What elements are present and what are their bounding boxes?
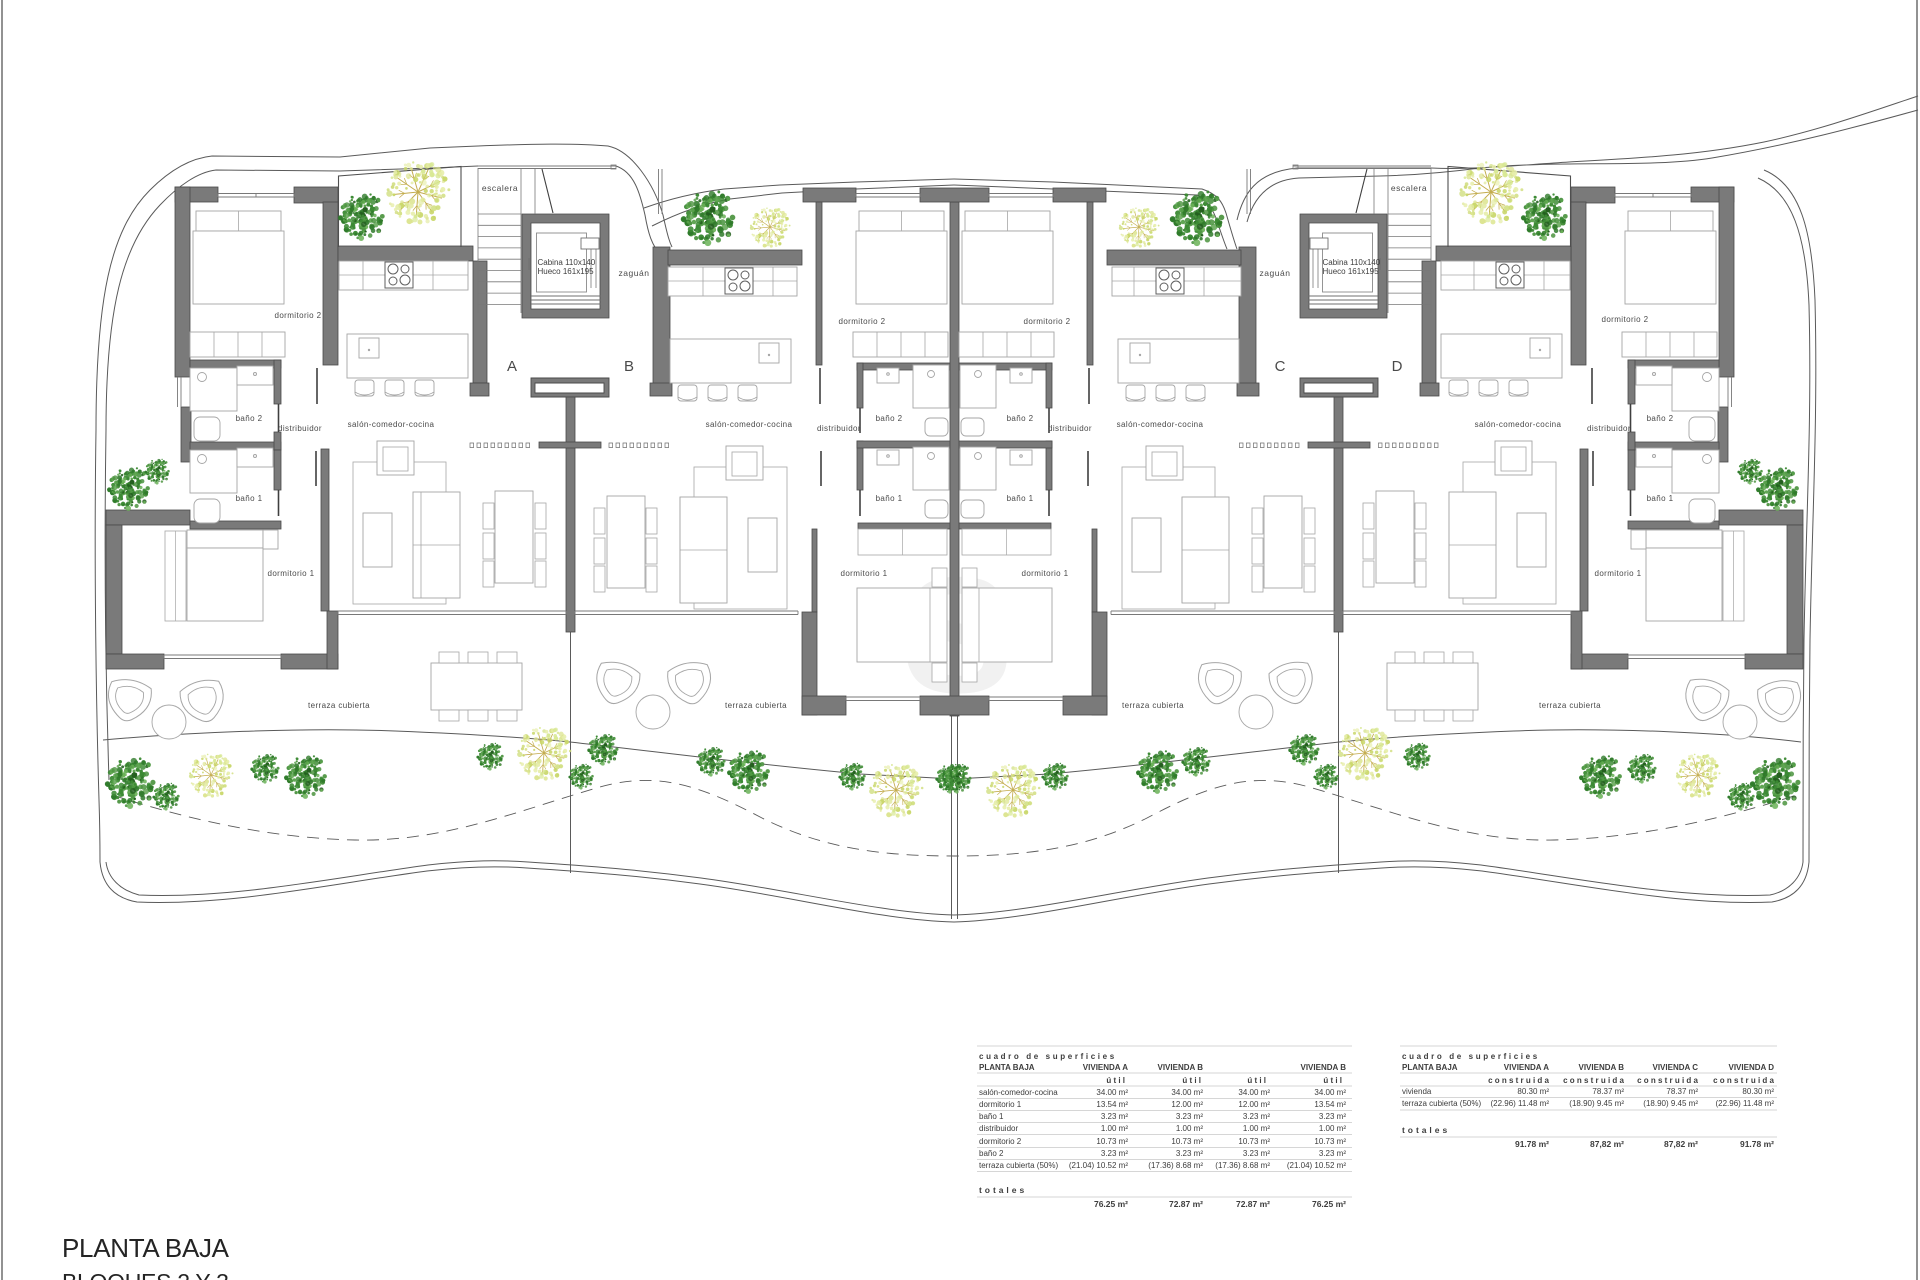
svg-text:baño 1: baño 1 bbox=[979, 1112, 1004, 1121]
svg-text:13.54 m²: 13.54 m² bbox=[1096, 1100, 1128, 1109]
svg-text:(18.90) 9.45 m²: (18.90) 9.45 m² bbox=[1569, 1099, 1624, 1108]
svg-text:10.73 m²: 10.73 m² bbox=[1238, 1137, 1270, 1146]
svg-text:distribuidor: distribuidor bbox=[1048, 424, 1092, 433]
svg-text:72.87 m²: 72.87 m² bbox=[1236, 1199, 1270, 1209]
svg-text:baño 1: baño 1 bbox=[876, 494, 903, 503]
svg-text:B: B bbox=[624, 358, 634, 375]
svg-text:78.37 m²: 78.37 m² bbox=[1592, 1087, 1624, 1096]
svg-text:c o n s t r u i d a: c o n s t r u i d a bbox=[1563, 1076, 1624, 1085]
svg-text:80.30 m²: 80.30 m² bbox=[1742, 1087, 1774, 1096]
svg-text:baño 2: baño 2 bbox=[236, 414, 263, 423]
svg-text:34.00 m²: 34.00 m² bbox=[1314, 1088, 1346, 1097]
svg-text:PLANTA BAJA: PLANTA BAJA bbox=[1402, 1063, 1458, 1072]
svg-text:13.54 m²: 13.54 m² bbox=[1314, 1100, 1346, 1109]
svg-text:(18.90) 9.45 m²: (18.90) 9.45 m² bbox=[1643, 1099, 1698, 1108]
svg-text:dormitorio 2: dormitorio 2 bbox=[274, 311, 321, 320]
svg-text:salón-comedor-cocina: salón-comedor-cocina bbox=[348, 420, 435, 429]
svg-text:80.30 m²: 80.30 m² bbox=[1517, 1087, 1549, 1096]
svg-text:distribuidor: distribuidor bbox=[1587, 424, 1631, 433]
svg-text:VIVIENDA D: VIVIENDA D bbox=[1729, 1063, 1775, 1072]
svg-text:C: C bbox=[1275, 358, 1286, 375]
svg-text:91.78 m²: 91.78 m² bbox=[1740, 1139, 1774, 1149]
svg-text:terraza cubierta (50%): terraza cubierta (50%) bbox=[979, 1161, 1058, 1170]
svg-text:Hueco 161x195: Hueco 161x195 bbox=[538, 267, 595, 276]
svg-text:terraza cubierta: terraza cubierta bbox=[725, 701, 787, 710]
svg-text:dormitorio 2: dormitorio 2 bbox=[1023, 317, 1070, 326]
svg-text:VIVIENDA B: VIVIENDA B bbox=[1158, 1063, 1204, 1072]
svg-text:terraza cubierta: terraza cubierta bbox=[308, 701, 370, 710]
svg-text:dormitorio 2: dormitorio 2 bbox=[1601, 315, 1648, 324]
svg-text:escalera: escalera bbox=[1391, 183, 1427, 193]
svg-text:VIVIENDA A: VIVIENDA A bbox=[1083, 1063, 1128, 1072]
svg-text:baño 2: baño 2 bbox=[1007, 414, 1034, 423]
svg-text:76.25 m²: 76.25 m² bbox=[1312, 1199, 1346, 1209]
svg-text:(21.04) 10.52 m²: (21.04) 10.52 m² bbox=[1287, 1161, 1346, 1170]
svg-text:1.00 m²: 1.00 m² bbox=[1176, 1124, 1203, 1133]
svg-text:(17.36) 8.68 m²: (17.36) 8.68 m² bbox=[1215, 1161, 1270, 1170]
svg-text:78.37 m²: 78.37 m² bbox=[1666, 1087, 1698, 1096]
svg-text:10.73 m²: 10.73 m² bbox=[1314, 1137, 1346, 1146]
svg-text:3.23 m²: 3.23 m² bbox=[1319, 1149, 1346, 1158]
svg-text:terraza cubierta: terraza cubierta bbox=[1539, 701, 1601, 710]
svg-text:distribuidor: distribuidor bbox=[817, 424, 861, 433]
svg-text:10.73 m²: 10.73 m² bbox=[1171, 1137, 1203, 1146]
svg-text:1.00 m²: 1.00 m² bbox=[1101, 1124, 1128, 1133]
svg-text:3.23 m²: 3.23 m² bbox=[1101, 1112, 1128, 1121]
svg-text:c u a d r o d e s u p e r: c u a d r o d e s u p e r f i c i e s bbox=[979, 1052, 1115, 1061]
svg-text:ú t i l: ú t i l bbox=[1247, 1076, 1266, 1085]
svg-text:1.00 m²: 1.00 m² bbox=[1319, 1124, 1346, 1133]
svg-text:ú t i l: ú t i l bbox=[1323, 1076, 1342, 1085]
svg-text:87,82 m²: 87,82 m² bbox=[1590, 1139, 1624, 1149]
svg-text:c u a d r o d e s u p e r: c u a d r o d e s u p e r f i c i e s bbox=[1402, 1052, 1538, 1061]
svg-text:10.73 m²: 10.73 m² bbox=[1096, 1137, 1128, 1146]
svg-text:ú t i l: ú t i l bbox=[1182, 1076, 1201, 1085]
svg-text:ú t i l: ú t i l bbox=[1106, 1076, 1125, 1085]
svg-text:dormitorio 1: dormitorio 1 bbox=[979, 1100, 1022, 1109]
svg-text:BLOQUES 2 Y 3: BLOQUES 2 Y 3 bbox=[62, 1269, 229, 1280]
svg-text:zaguán: zaguán bbox=[1260, 268, 1291, 278]
svg-text:distribuidor: distribuidor bbox=[278, 424, 322, 433]
svg-text:87,82 m²: 87,82 m² bbox=[1664, 1139, 1698, 1149]
svg-text:terraza cubierta: terraza cubierta bbox=[1122, 701, 1184, 710]
svg-text:VIVIENDA C: VIVIENDA C bbox=[1653, 1063, 1699, 1072]
svg-text:34.00 m²: 34.00 m² bbox=[1238, 1088, 1270, 1097]
svg-text:VIVIENDA B: VIVIENDA B bbox=[1579, 1063, 1625, 1072]
svg-text:D: D bbox=[1392, 358, 1403, 375]
svg-text:dormitorio 1: dormitorio 1 bbox=[840, 569, 887, 578]
svg-text:baño 1: baño 1 bbox=[1647, 494, 1674, 503]
svg-text:terraza cubierta (50%): terraza cubierta (50%) bbox=[1402, 1099, 1481, 1108]
svg-text:12.00 m²: 12.00 m² bbox=[1171, 1100, 1203, 1109]
svg-text:c o n s t r u i d a: c o n s t r u i d a bbox=[1713, 1076, 1774, 1085]
svg-text:salón-comedor-cocina: salón-comedor-cocina bbox=[706, 420, 793, 429]
svg-text:3.23 m²: 3.23 m² bbox=[1319, 1112, 1346, 1121]
svg-text:dormitorio 1: dormitorio 1 bbox=[1594, 569, 1641, 578]
svg-text:dormitorio 2: dormitorio 2 bbox=[838, 317, 885, 326]
svg-text:dormitorio 1: dormitorio 1 bbox=[1021, 569, 1068, 578]
svg-text:distribuidor: distribuidor bbox=[979, 1124, 1018, 1133]
svg-text:c o n s t r u i d a: c o n s t r u i d a bbox=[1488, 1076, 1549, 1085]
svg-text:c o n s t r u i d a: c o n s t r u i d a bbox=[1637, 1076, 1698, 1085]
svg-text:12.00 m²: 12.00 m² bbox=[1238, 1100, 1270, 1109]
svg-text:76.25 m²: 76.25 m² bbox=[1094, 1199, 1128, 1209]
svg-text:salón-comedor-cocina: salón-comedor-cocina bbox=[1117, 420, 1204, 429]
svg-text:vivienda: vivienda bbox=[1402, 1087, 1432, 1096]
svg-text:VIVIENDA A: VIVIENDA A bbox=[1504, 1063, 1549, 1072]
svg-text:3.23 m²: 3.23 m² bbox=[1243, 1149, 1270, 1158]
svg-text:91.78 m²: 91.78 m² bbox=[1515, 1139, 1549, 1149]
svg-text:PLANTA BAJA: PLANTA BAJA bbox=[979, 1063, 1035, 1072]
svg-text:3.23 m²: 3.23 m² bbox=[1176, 1112, 1203, 1121]
svg-text:(21.04) 10.52 m²: (21.04) 10.52 m² bbox=[1069, 1161, 1128, 1170]
svg-text:(22.96) 11.48 m²: (22.96) 11.48 m² bbox=[1715, 1099, 1774, 1108]
svg-text:t o t a l e s: t o t a l e s bbox=[1402, 1125, 1447, 1135]
svg-text:t o t a l e s: t o t a l e s bbox=[979, 1185, 1024, 1195]
svg-text:PLANTA BAJA: PLANTA BAJA bbox=[62, 1233, 230, 1263]
svg-text:3.23 m²: 3.23 m² bbox=[1101, 1149, 1128, 1158]
svg-text:baño 1: baño 1 bbox=[1007, 494, 1034, 503]
svg-text:baño 1: baño 1 bbox=[236, 494, 263, 503]
svg-text:salón-comedor-cocina: salón-comedor-cocina bbox=[1475, 420, 1562, 429]
svg-text:zaguán: zaguán bbox=[619, 268, 650, 278]
svg-text:baño 2: baño 2 bbox=[876, 414, 903, 423]
svg-text:Hueco 161x195: Hueco 161x195 bbox=[1323, 267, 1380, 276]
svg-text:34.00 m²: 34.00 m² bbox=[1096, 1088, 1128, 1097]
svg-text:(17.36) 8.68 m²: (17.36) 8.68 m² bbox=[1148, 1161, 1203, 1170]
svg-text:3.23 m²: 3.23 m² bbox=[1243, 1112, 1270, 1121]
svg-text:baño 2: baño 2 bbox=[979, 1149, 1004, 1158]
svg-text:72.87 m²: 72.87 m² bbox=[1169, 1199, 1203, 1209]
svg-text:dormitorio 1: dormitorio 1 bbox=[267, 569, 314, 578]
svg-text:(22.96) 11.48 m²: (22.96) 11.48 m² bbox=[1490, 1099, 1549, 1108]
svg-text:salón-comedor-cocina: salón-comedor-cocina bbox=[979, 1088, 1058, 1097]
svg-text:Cabina 110x140: Cabina 110x140 bbox=[538, 258, 596, 267]
svg-text:dormitorio 2: dormitorio 2 bbox=[979, 1137, 1022, 1146]
svg-text:34.00 m²: 34.00 m² bbox=[1171, 1088, 1203, 1097]
svg-text:3.23 m²: 3.23 m² bbox=[1176, 1149, 1203, 1158]
svg-text:baño 2: baño 2 bbox=[1647, 414, 1674, 423]
svg-text:1.00 m²: 1.00 m² bbox=[1243, 1124, 1270, 1133]
svg-text:Cabina 110x140: Cabina 110x140 bbox=[1323, 258, 1381, 267]
svg-text:escalera: escalera bbox=[482, 183, 518, 193]
svg-text:VIVIENDA B: VIVIENDA B bbox=[1301, 1063, 1347, 1072]
svg-text:A: A bbox=[507, 358, 517, 375]
